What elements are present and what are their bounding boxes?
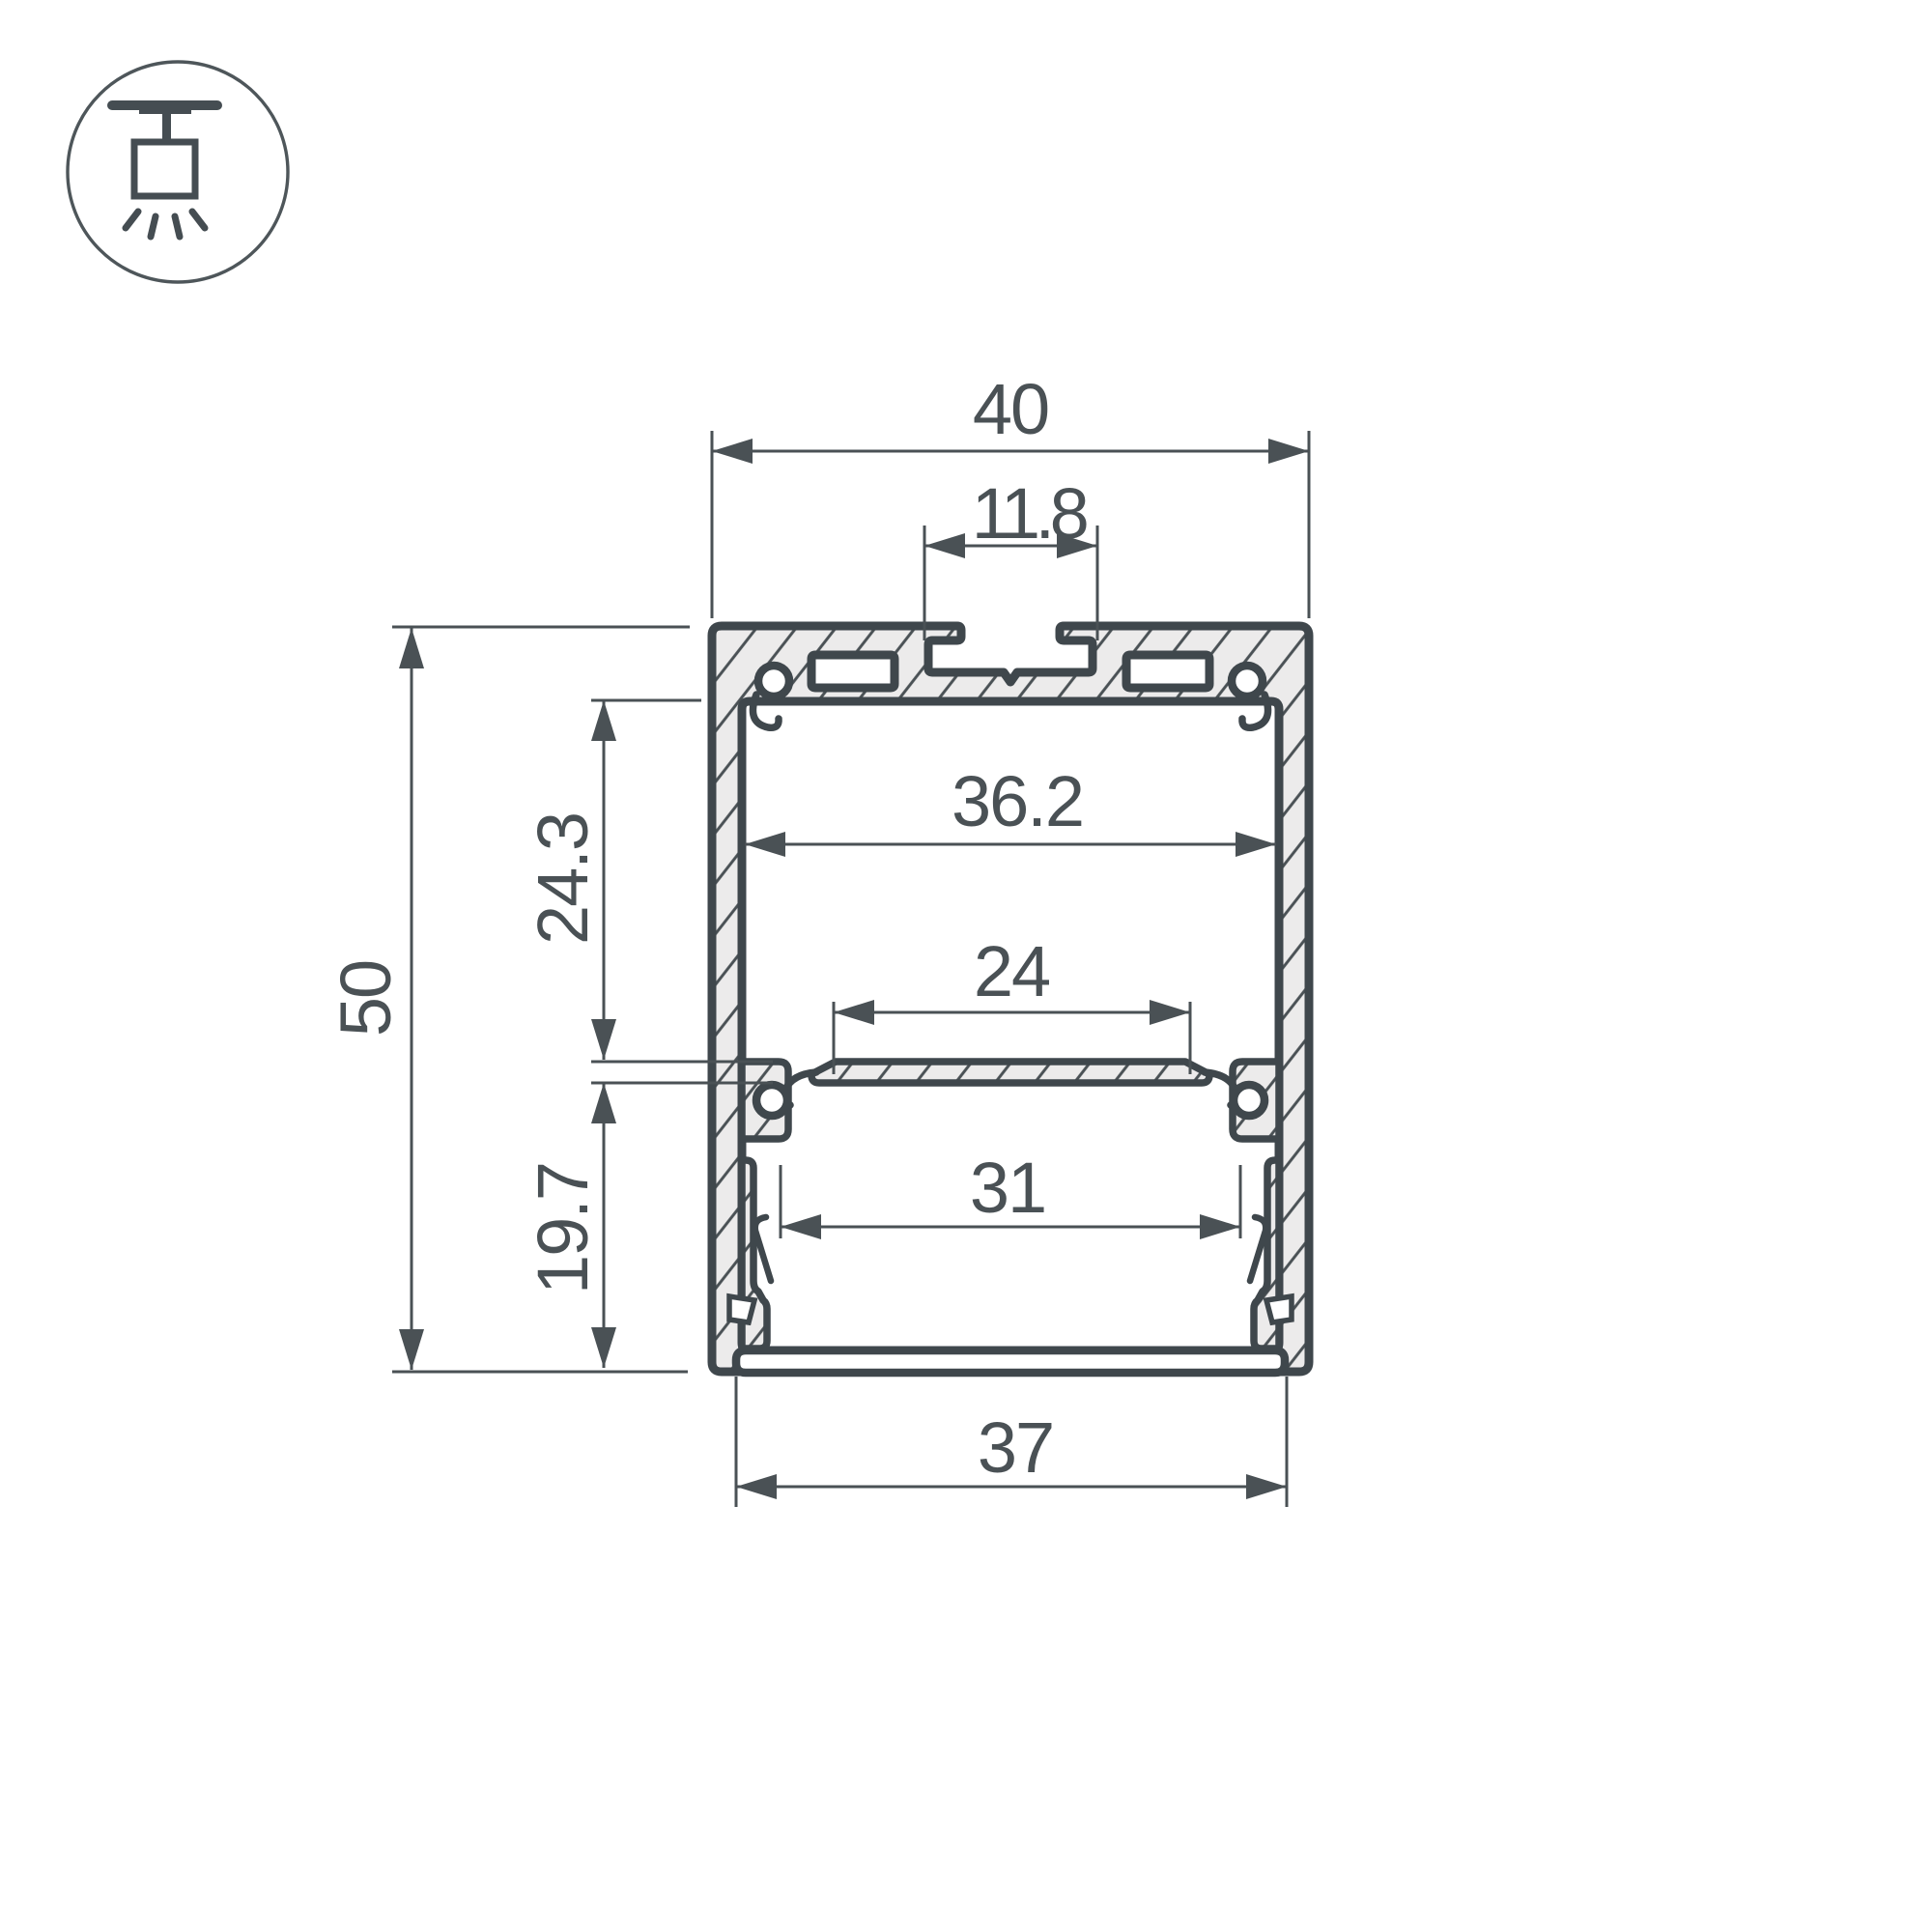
svg-text:11.8: 11.8 [972,473,1087,554]
svg-text:19.7: 19.7 [523,1163,603,1294]
svg-text:24: 24 [974,931,1049,1011]
svg-text:36.2: 36.2 [952,761,1083,841]
svg-text:50: 50 [326,961,406,1037]
svg-text:24.3: 24.3 [523,813,603,945]
svg-text:37: 37 [978,1407,1053,1488]
svg-text:31: 31 [970,1148,1045,1228]
svg-text:40: 40 [973,369,1048,449]
